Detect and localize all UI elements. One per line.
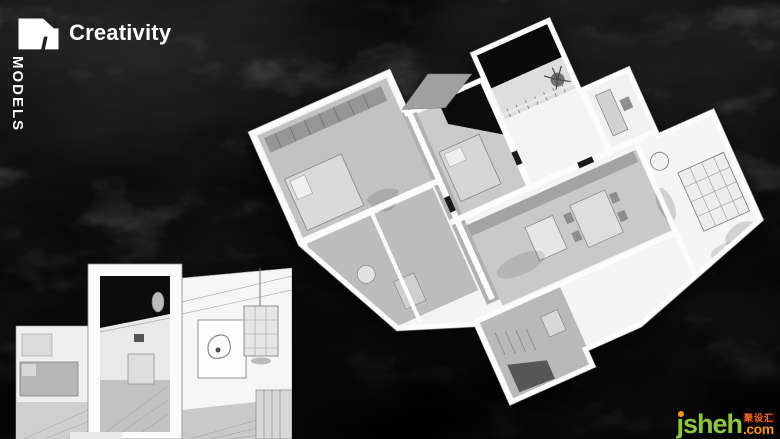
watermark-tld: .com xyxy=(743,423,774,435)
slide-canvas: Creativity MODELS xyxy=(0,0,780,439)
watermark-brand: jsheh xyxy=(676,414,742,435)
watermark: jsheh 聚设汇 .com xyxy=(676,414,775,435)
detail-model-image xyxy=(10,262,292,439)
